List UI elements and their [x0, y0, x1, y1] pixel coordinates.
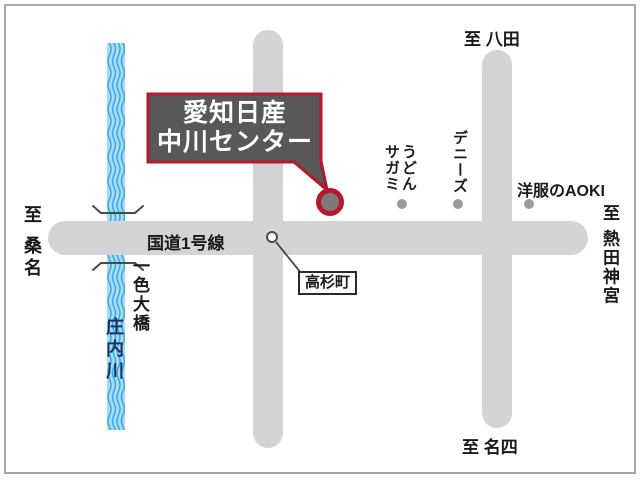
landmark-dennys-label: デニーズ: [449, 130, 470, 194]
landmark-udon-sagami-label: うどんサガミ: [383, 144, 417, 192]
dealer-name-line1: 愛知日産: [183, 99, 287, 128]
river-shonai-label: 庄内川: [101, 317, 127, 383]
map-frame-border: [4, 4, 636, 474]
dealer-callout: 愛知日産 中川センター: [148, 93, 322, 163]
dest-east-atsuta: 至 熱田神宮: [597, 204, 622, 306]
landmark-aoki-label: 洋服のAOKI: [517, 177, 605, 201]
dest-north-hatta: 至 八田: [464, 25, 520, 50]
bridge-isshiki-label: 一色大橋: [127, 257, 152, 333]
sagami-line: サガミ: [383, 144, 400, 192]
intersection-takasugicho-box: 高杉町: [298, 271, 357, 295]
udon-line: うどん: [400, 144, 417, 192]
dealer-name-line2: 中川センター: [157, 128, 313, 157]
dest-south-meishi: 至 名四: [462, 433, 518, 458]
dest-west-kuwana: 至 桑名: [19, 205, 45, 280]
dealer-location-map: 愛知日産 中川センター 国道1号線 至 八田 至 名四 至 桑名 至 熱田神宮 …: [0, 0, 640, 480]
intersection-takasugicho-label: 高杉町: [305, 274, 350, 291]
route1-label: 国道1号線: [147, 229, 224, 254]
